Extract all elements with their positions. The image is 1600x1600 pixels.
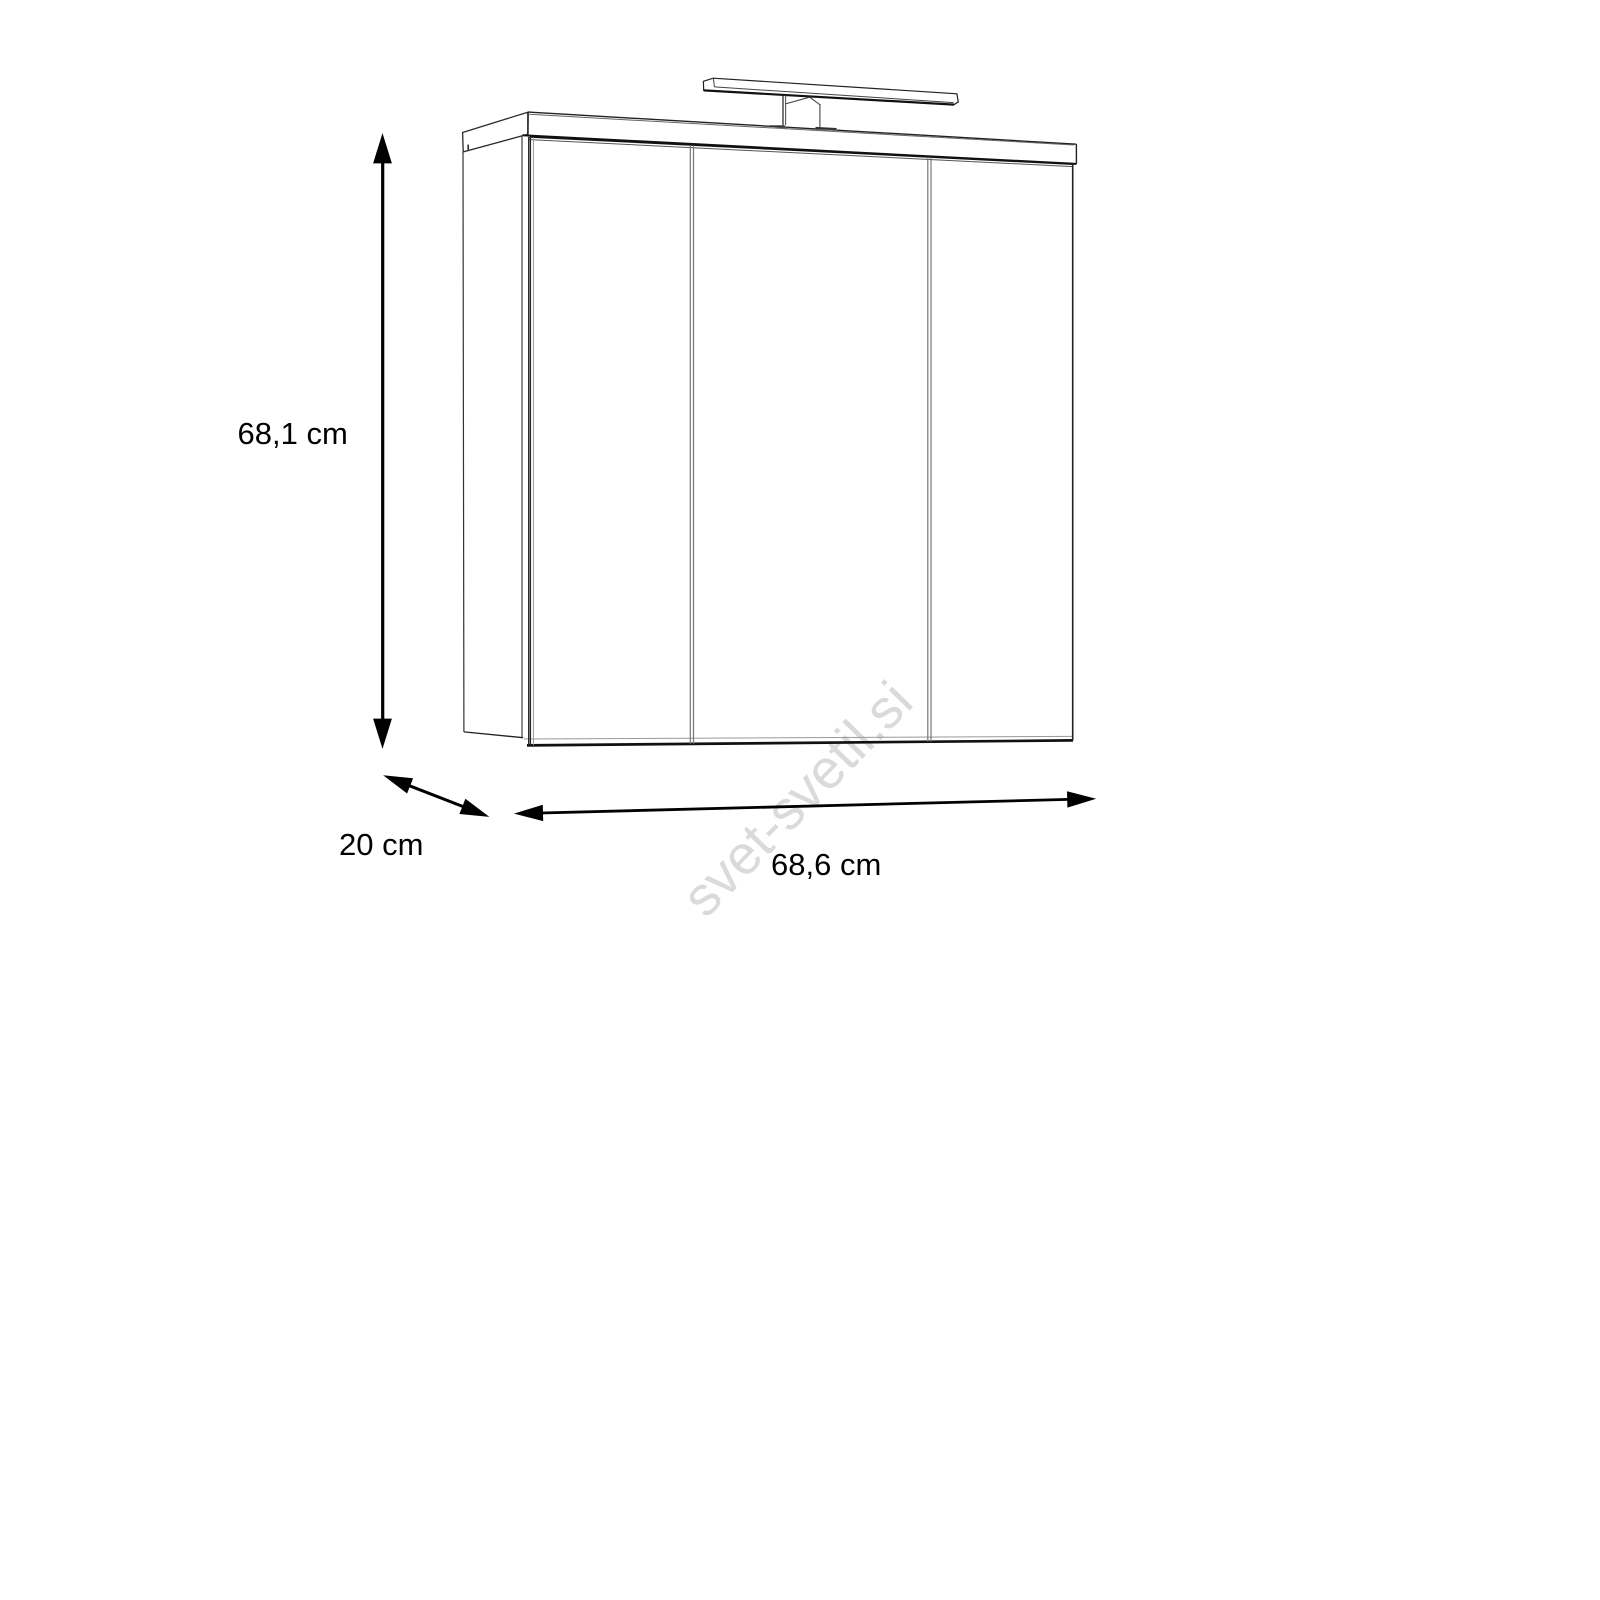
svg-text:68,6 cm: 68,6 cm: [771, 847, 881, 882]
svg-text:20 cm: 20 cm: [339, 827, 423, 862]
svg-text:68,1 cm: 68,1 cm: [238, 416, 348, 451]
